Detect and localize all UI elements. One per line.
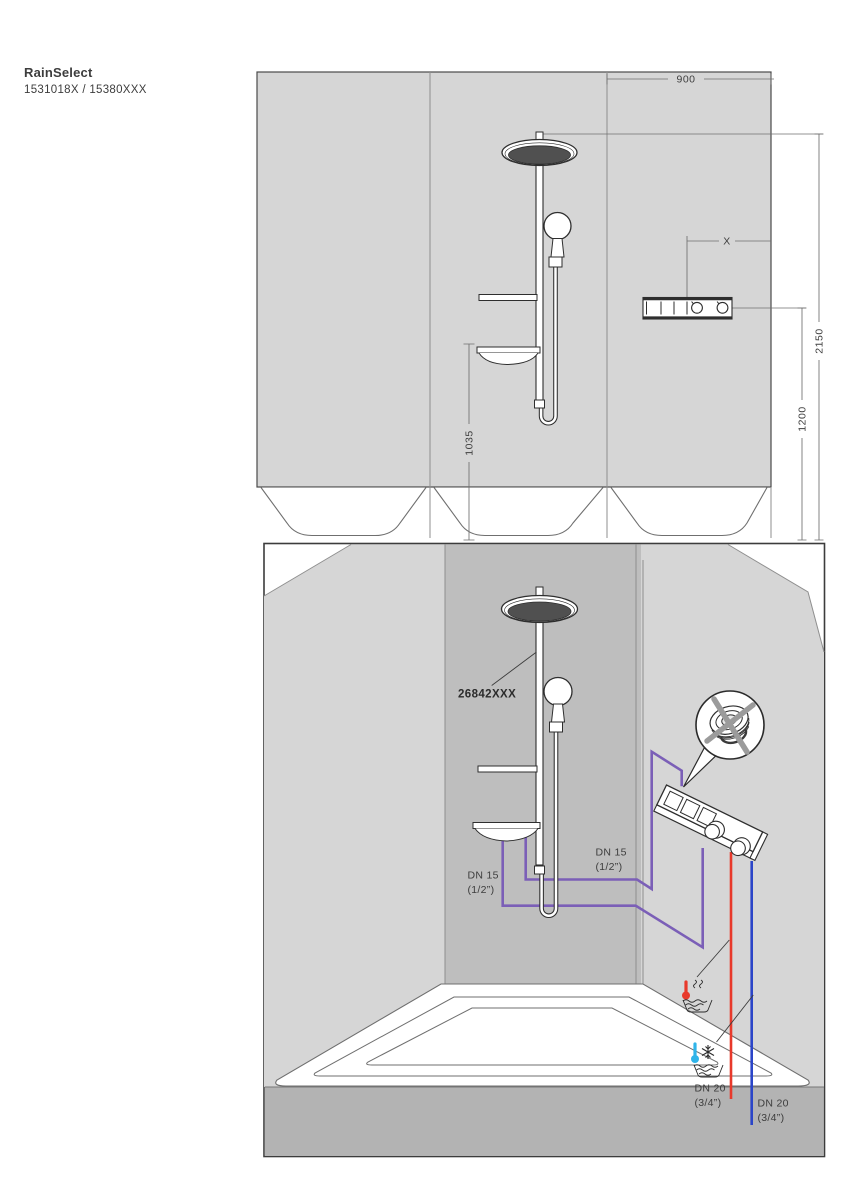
svg-text:(1/2”): (1/2”) [468, 884, 495, 896]
hand-shower-holder [550, 722, 563, 732]
tub-front-3 [611, 488, 767, 536]
valve-trim-front [643, 298, 732, 320]
shelf-bar [478, 766, 537, 772]
hand-shower-holder [549, 257, 562, 267]
riser-pipe [536, 160, 543, 406]
svg-text:DN 15: DN 15 [468, 870, 499, 882]
overhead-shower-face [509, 146, 571, 164]
hand-shower-handle [551, 239, 564, 258]
bathtub-outlines [261, 488, 767, 536]
installation-sheet: RainSelect 1531018X / 15380XXX 900 X [0, 0, 848, 1200]
floor [265, 1087, 824, 1156]
svg-text:(1/2”): (1/2”) [596, 861, 623, 873]
riser-end-connector [535, 866, 545, 874]
perspective-view: 26842XXX [264, 544, 825, 1157]
dimension-2150: 2150 [814, 134, 826, 540]
dim-2150-value: 2150 [814, 328, 826, 353]
installation-drawing: RainSelect 1531018X / 15380XXX 900 X [0, 0, 848, 1200]
svg-text:DN 15: DN 15 [596, 847, 627, 859]
dim-1200-value: 1200 [797, 406, 809, 431]
riser-end-connector [535, 400, 545, 408]
header: RainSelect 1531018X / 15380XXX [24, 65, 147, 96]
tub-front-2 [434, 488, 603, 536]
svg-text:DN 20: DN 20 [758, 1098, 789, 1110]
svg-text:(3/4”): (3/4”) [695, 1097, 722, 1109]
dim-x-value: X [723, 236, 731, 248]
overhead-shower-face [508, 602, 571, 621]
part-number: 26842XXX [458, 689, 516, 701]
shelf-bar [479, 295, 537, 301]
dim-1035-value: 1035 [464, 430, 476, 455]
valve-knob-right [717, 302, 728, 313]
valve-knob-left [692, 302, 703, 313]
tub-front-1 [261, 488, 426, 536]
page-title: RainSelect [24, 65, 93, 80]
dimension-1200: 1200 [797, 308, 809, 540]
hand-shower-head [544, 213, 571, 240]
hand-shower-handle [552, 704, 565, 722]
dim-900-value: 900 [676, 74, 695, 86]
soap-shelf [473, 823, 540, 829]
product-codes: 1531018X / 15380XXX [24, 84, 147, 96]
svg-text:(3/4”): (3/4”) [758, 1112, 785, 1124]
hand-shower-head [544, 678, 572, 706]
svg-text:DN 20: DN 20 [695, 1083, 726, 1095]
front-view: 900 X 2150 1200 1035 [257, 72, 826, 540]
soap-shelf [477, 347, 540, 353]
